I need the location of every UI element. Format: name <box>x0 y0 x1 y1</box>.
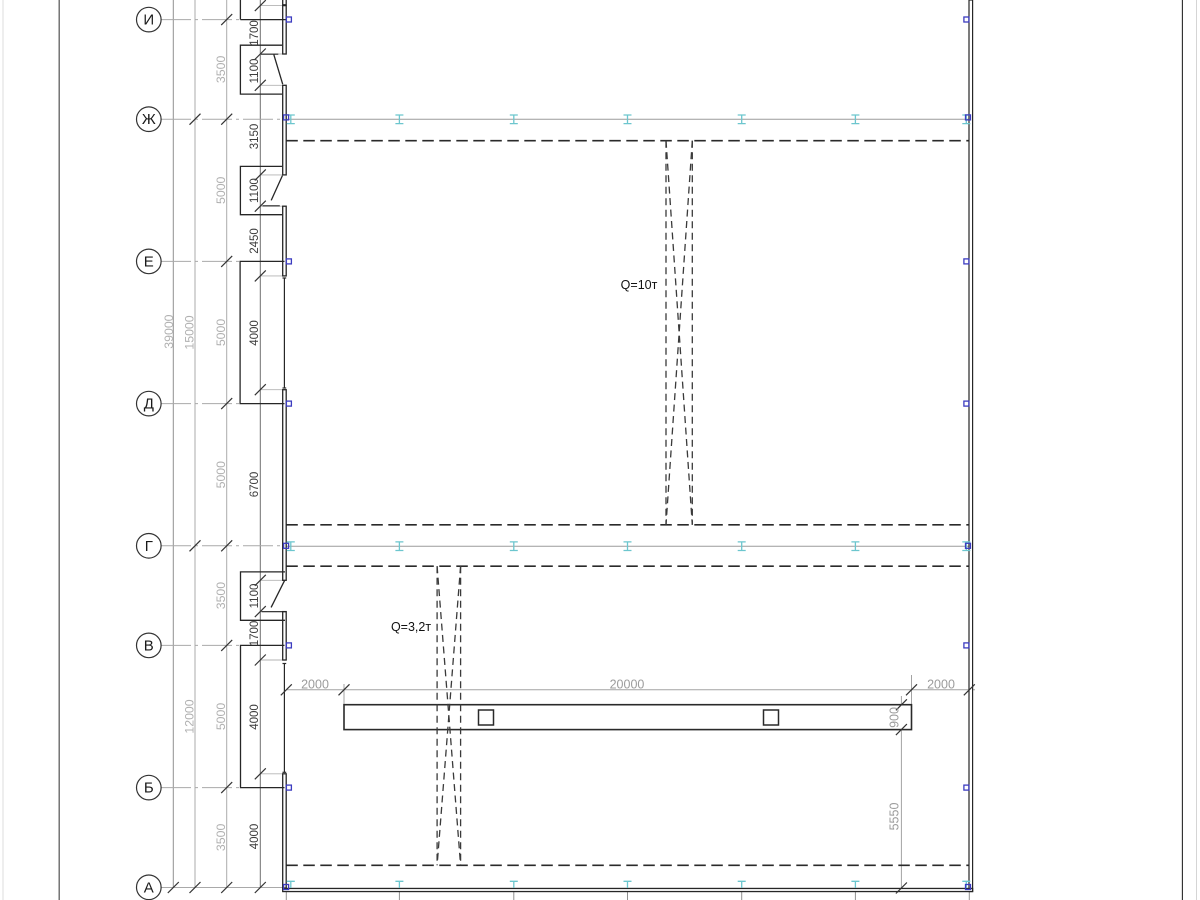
svg-text:И: И <box>143 12 154 29</box>
svg-text:В: В <box>144 637 154 654</box>
svg-text:4000: 4000 <box>249 320 261 346</box>
svg-text:15000: 15000 <box>183 315 197 349</box>
svg-text:20000: 20000 <box>610 677 645 691</box>
svg-text:2000: 2000 <box>927 677 955 691</box>
svg-text:900: 900 <box>888 707 902 728</box>
svg-text:Ж: Ж <box>142 111 156 128</box>
svg-text:6700: 6700 <box>249 472 261 498</box>
svg-text:5000: 5000 <box>214 319 228 347</box>
svg-text:5550: 5550 <box>888 803 902 831</box>
svg-text:3500: 3500 <box>214 582 228 610</box>
svg-text:Е: Е <box>144 253 154 270</box>
svg-text:5000: 5000 <box>214 703 228 731</box>
svg-text:2000: 2000 <box>301 677 329 691</box>
svg-text:5000: 5000 <box>214 461 228 489</box>
svg-text:3500: 3500 <box>214 56 228 84</box>
svg-text:Г: Г <box>145 538 153 555</box>
svg-text:3500: 3500 <box>214 824 228 852</box>
svg-text:Б: Б <box>144 780 154 797</box>
svg-text:1700: 1700 <box>249 621 261 647</box>
svg-text:39000: 39000 <box>162 314 176 348</box>
svg-text:4000: 4000 <box>249 824 261 850</box>
svg-text:12000: 12000 <box>183 699 197 733</box>
svg-text:Q=10т: Q=10т <box>621 278 658 292</box>
svg-text:А: А <box>144 879 154 896</box>
svg-text:3150: 3150 <box>249 124 261 150</box>
svg-text:5000: 5000 <box>214 176 228 204</box>
svg-text:1100: 1100 <box>249 59 261 84</box>
svg-text:Д: Д <box>144 396 154 413</box>
svg-text:1700: 1700 <box>249 20 261 46</box>
svg-text:1100: 1100 <box>249 584 261 609</box>
svg-text:4000: 4000 <box>249 704 261 730</box>
svg-text:2450: 2450 <box>249 228 261 254</box>
svg-text:Q=3,2т: Q=3,2т <box>391 620 431 634</box>
svg-text:1100: 1100 <box>249 178 261 203</box>
